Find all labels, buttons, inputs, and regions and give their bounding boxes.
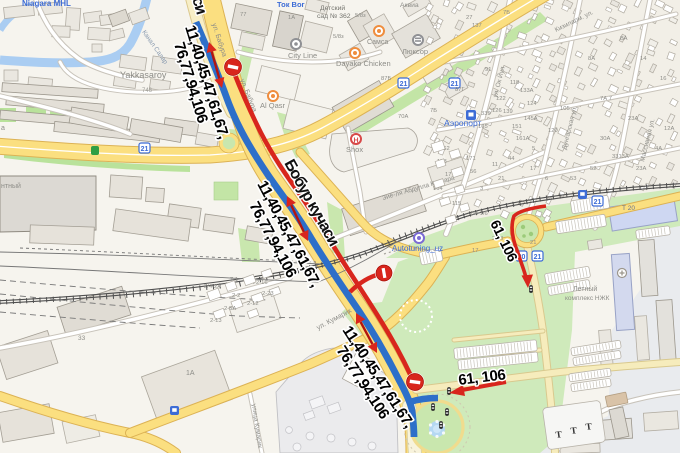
svg-text:4А: 4А [655, 146, 662, 152]
svg-text:118: 118 [510, 80, 519, 86]
svg-text:16: 16 [660, 76, 666, 82]
svg-text:сад № 362: сад № 362 [317, 13, 351, 20]
svg-text:Yakkasaroy: Yakkasaroy [120, 70, 167, 80]
svg-text:87Г: 87Г [455, 87, 465, 93]
svg-text:87Б: 87Б [381, 76, 391, 82]
svg-text:44: 44 [508, 156, 515, 162]
svg-text:17: 17 [530, 166, 536, 172]
svg-text:137: 137 [472, 23, 482, 29]
svg-text:Аквиа: Аквиа [400, 2, 419, 9]
svg-text:6: 6 [545, 176, 548, 182]
svg-text:5/8з: 5/8з [355, 13, 366, 19]
svg-text:21: 21 [141, 146, 149, 153]
svg-text:70А: 70А [398, 114, 408, 120]
svg-text:120: 120 [548, 128, 558, 134]
svg-text:7А 7: 7А 7 [600, 96, 612, 102]
svg-text:1/4 1/6: 1/4 1/6 [470, 211, 488, 217]
svg-text:11: 11 [492, 162, 498, 168]
svg-text:53: 53 [570, 176, 576, 182]
svg-text:Autotuning_uz: Autotuning_uz [392, 244, 443, 253]
svg-text:Al Qasr: Al Qasr [260, 101, 286, 110]
svg-text:5/8з: 5/8з [333, 34, 344, 40]
svg-text:21: 21 [594, 199, 602, 206]
svg-text:91: 91 [485, 67, 491, 73]
svg-text:Аэропорт: Аэропорт [444, 118, 482, 128]
svg-text:1А: 1А [288, 15, 295, 21]
svg-text:5: 5 [532, 146, 535, 152]
svg-text:Люксор: Люксор [402, 47, 428, 56]
svg-text:161А: 161А [516, 136, 530, 142]
svg-text:12А: 12А [664, 126, 674, 132]
svg-text:171: 171 [466, 156, 476, 162]
svg-text:City Line: City Line [288, 51, 317, 60]
svg-text:339: 339 [481, 111, 491, 117]
svg-text:56: 56 [470, 169, 476, 175]
svg-text:3313А: 3313А [612, 154, 629, 160]
svg-text:2-23: 2-23 [262, 291, 274, 297]
svg-text:2-16: 2-16 [256, 280, 268, 286]
svg-text:2/4-2А: 2/4-2А [204, 284, 221, 290]
svg-text:H: H [353, 138, 358, 145]
svg-text:Т 20: Т 20 [622, 205, 635, 212]
svg-text:139: 139 [503, 109, 513, 115]
svg-text:124: 124 [527, 101, 537, 107]
svg-text:14: 14 [640, 56, 647, 62]
svg-text:2-2: 2-2 [232, 293, 240, 299]
svg-text:2-5А: 2-5А [224, 306, 236, 312]
svg-text:23А: 23А [636, 166, 646, 172]
svg-text:133А: 133А [520, 88, 534, 94]
svg-text:7 1: 7 1 [230, 277, 238, 283]
svg-text:а: а [1, 125, 5, 132]
svg-text:Shox: Shox [346, 145, 363, 154]
svg-text:8А: 8А [588, 56, 595, 62]
svg-text:21: 21 [534, 254, 542, 261]
svg-text:2-13: 2-13 [210, 318, 222, 324]
svg-text:1А: 1А [186, 370, 195, 377]
svg-text:23А: 23А [628, 116, 638, 122]
svg-text:122: 122 [496, 96, 506, 102]
svg-text:Dayako Chicken: Dayako Chicken [336, 59, 391, 68]
svg-text:746: 746 [142, 88, 153, 94]
svg-text:Самса: Самса [367, 39, 388, 46]
svg-text:7Б: 7Б [503, 10, 510, 16]
svg-text:ВА: ВА [620, 36, 628, 42]
svg-text:77: 77 [240, 12, 246, 18]
svg-text:7Б: 7Б [430, 108, 437, 114]
svg-text:17: 17 [472, 248, 478, 254]
svg-text:комплекс НЖК: комплекс НЖК [565, 295, 610, 302]
svg-text:21: 21 [498, 176, 504, 182]
svg-text:33: 33 [78, 335, 86, 342]
svg-text:Niagara MHL: Niagara MHL [22, 0, 71, 8]
svg-text:27: 27 [466, 15, 472, 21]
svg-text:145А: 145А [524, 116, 538, 122]
svg-text:30А: 30А [600, 136, 610, 142]
svg-text:Летный: Летный [573, 285, 597, 293]
svg-text:Ток Вог: Ток Вог [277, 0, 305, 9]
svg-text:126: 126 [492, 108, 502, 114]
svg-text:21: 21 [530, 240, 536, 246]
svg-text:151: 151 [512, 124, 522, 130]
svg-text:3: 3 [480, 186, 483, 192]
svg-text:105: 105 [560, 106, 570, 112]
svg-text:52: 52 [590, 166, 596, 172]
svg-text:21: 21 [400, 81, 408, 88]
svg-text:165: 165 [478, 124, 488, 130]
svg-text:нтный: нтный [1, 182, 21, 190]
svg-text:2-12: 2-12 [247, 301, 259, 307]
svg-text:Детский: Детский [320, 4, 345, 12]
